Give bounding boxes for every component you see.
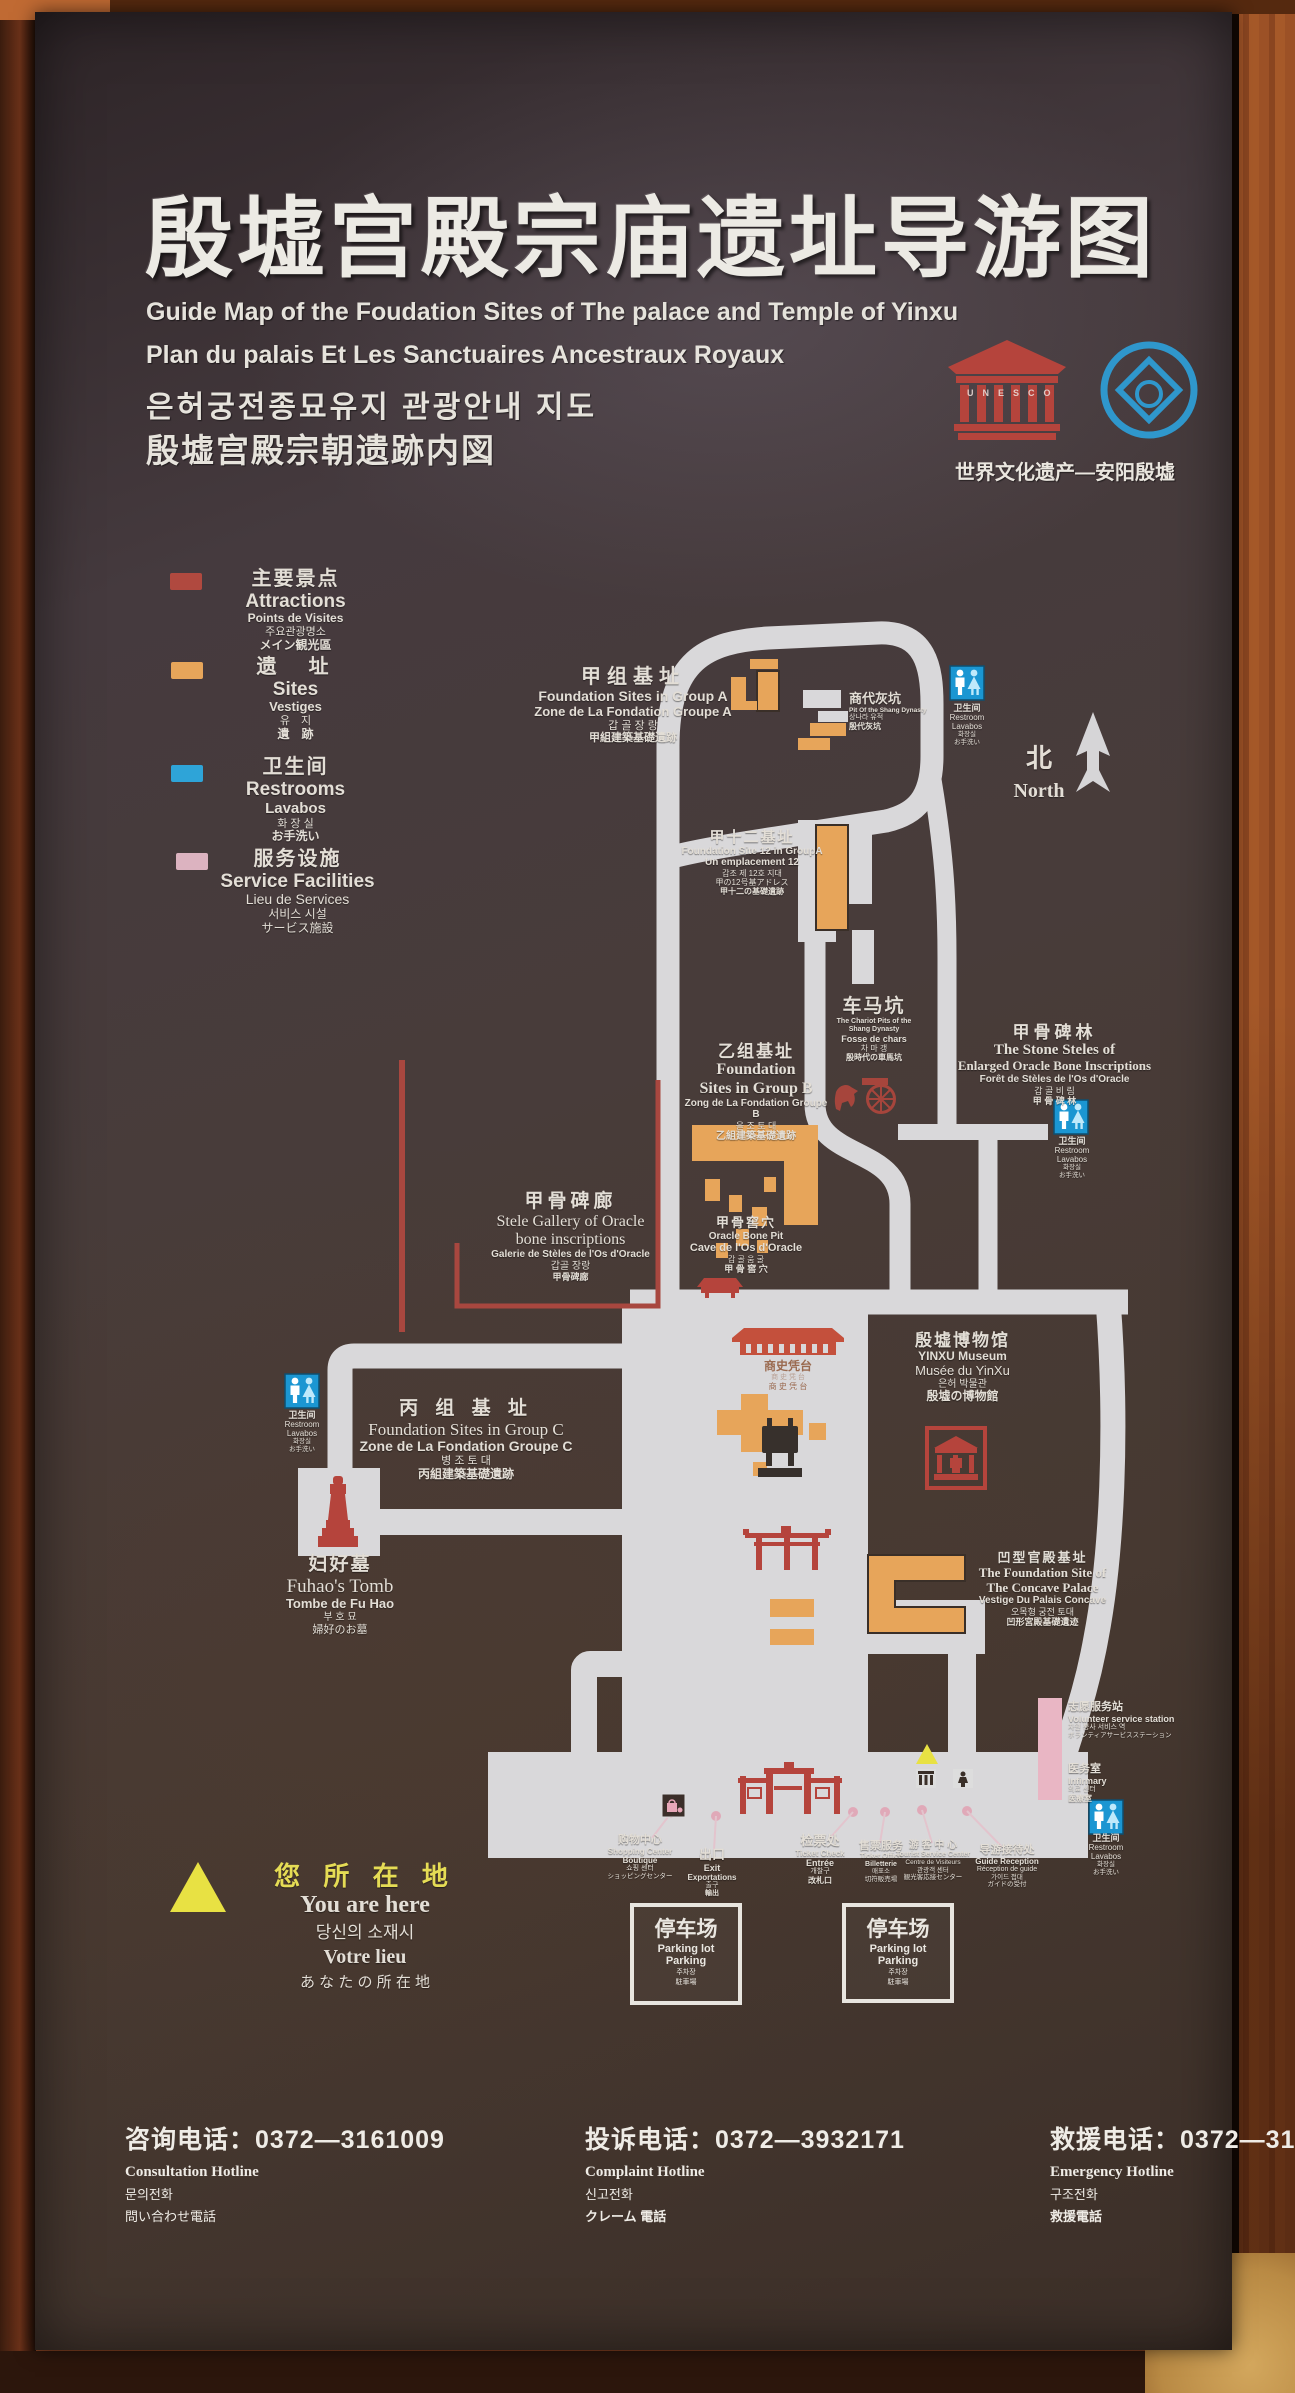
label-concave-palace: 凹型官殿基址 The Foundation Site of The Concav… — [950, 1551, 1135, 1627]
label-restroom-east: 卫生间 Restroom Lavabos 화장실 お手洗い — [1036, 1136, 1108, 1179]
label-shang-pit: 商代灰坑 Pit Of the Shang Dynasty 상나라 유적 殷代灰… — [849, 692, 944, 731]
wood-frame-left — [0, 0, 36, 2393]
hotline-consultation: 咨询电话：0372—3161009 Consultation Hotline 문… — [125, 2120, 555, 2225]
label-tourist-center: 游 客 中 心 Tourist Service Center Centre de… — [893, 1840, 973, 1882]
label-chariot-pit: 车马坑 The Chariot Pits of the Shang Dynast… — [819, 996, 929, 1062]
label-museum: 殷墟博物馆 YINXU Museum Musée du YinXu 은허 박물관… — [890, 1331, 1035, 1404]
label-restroom-south: 卫生间 Restroom Lavabos 화장실 お手洗い — [1070, 1833, 1142, 1876]
label-stele-forest: 甲骨碑林 The Stone Steles of Enlarged Oracle… — [952, 1023, 1157, 1106]
label-exit: 出口 Exit Exportations 출구 輸出 — [677, 1848, 747, 1898]
you-are-here-legend: 您 所 在 地 You are here 당신의 소재시 Votre lieu … — [255, 1862, 475, 1991]
parking-lot-west: 停车场 Parking lot Parking 주차장 駐車場 — [630, 1903, 742, 2005]
north-label: 北 North — [1008, 744, 1070, 802]
label-guide-reception: 导游接待处 Guide Reception Réception de guide… — [963, 1844, 1051, 1888]
label-shang-hall: 商史凭台 商 史 凭 台 商 史 凭 台 — [728, 1360, 848, 1391]
hotline-complaint: 投诉电话：0372—3932171 Complaint Hotline 신고전화… — [585, 2120, 1015, 2225]
label-restroom-north: 卫生间 Restroom Lavabos 화장실 お手洗い — [932, 703, 1002, 746]
label-group-b: 乙组基址 Foundation Sites in Group B Zong de… — [683, 1042, 829, 1142]
legend-services: 服务设施 Service Facilities Lieu de Services… — [195, 848, 400, 936]
page-title: 殷墟宫殿宗庙遗址导游图 — [145, 168, 1105, 295]
hotline-emergency: 救援电话：0372—3161007 Emergency Hotline 구조전화… — [1050, 2120, 1295, 2225]
subtitle-ja: 殷墟宫殿宗朝遗跡内図 — [146, 424, 496, 472]
label-infirmary: 医务室 Infirmary 의료 센터 医療室 — [1068, 1763, 1148, 1803]
label-fuhao-tomb: 妇好墓 Fuhao's Tomb Tombe de Fu Hao 부 호 묘 婦… — [262, 1554, 418, 1636]
legend-swatch-attractions — [170, 573, 202, 590]
legend-swatch-sites — [171, 662, 203, 679]
legend-attractions: 主要景点 Attractions Points de Visites 주요관광명… — [208, 568, 383, 652]
label-oracle-pit: 甲骨窖穴 Oracle Bone Pit Cave de l'Os d'Orac… — [685, 1216, 807, 1274]
label-restroom-west: 卫生间 Restroom Lavabos 화장실 お手洗い — [266, 1410, 338, 1453]
heritage-caption: 世界文化遗产—安阳殷墟 — [930, 456, 1200, 485]
subtitle-fr: Plan du palais Et Les Sanctuaires Ancest… — [146, 341, 784, 370]
label-volunteer-station: 志愿服务站 Volunteer service station 자원 봉사 서비… — [1068, 1701, 1203, 1739]
legend-sites: 遗 址 Sites Vestiges 유 지 遺 跡 — [208, 656, 383, 741]
legend-swatch-restrooms — [171, 765, 203, 782]
wood-frame-bottom — [0, 2351, 1295, 2393]
subtitle-ko: 은허궁전종묘유지 관광안내 지도 — [146, 382, 597, 426]
photo-canvas: 殷墟宫殿宗庙遗址导游图 Guide Map of the Foudation S… — [0, 0, 1295, 2393]
legend-restrooms: 卫生间 Restrooms Lavabos 화 장 실 お手洗い — [208, 756, 383, 844]
label-site12: 甲十二基址 Foundation Site 12 in GroupA Un em… — [667, 829, 837, 896]
subtitle-en: Guide Map of the Foudation Sites of The … — [146, 298, 958, 327]
label-shopping-center: 购物中心 Shopping Center Boutique 쇼핑 센터 ショッピ… — [592, 1834, 688, 1880]
unesco-letters: UNESCO — [967, 388, 1051, 398]
label-group-c: 丙 组 基 址 Foundation Sites in Group C Zone… — [350, 1398, 582, 1481]
label-group-a: 甲组基址 Foundation Sites in Group A Zone de… — [518, 666, 748, 745]
label-stele-gallery: 甲骨碑廊 Stele Gallery of Oracle bone inscri… — [463, 1191, 678, 1282]
parking-lot-east: 停车场 Parking lot Parking 주차장 駐車場 — [842, 1903, 954, 2003]
